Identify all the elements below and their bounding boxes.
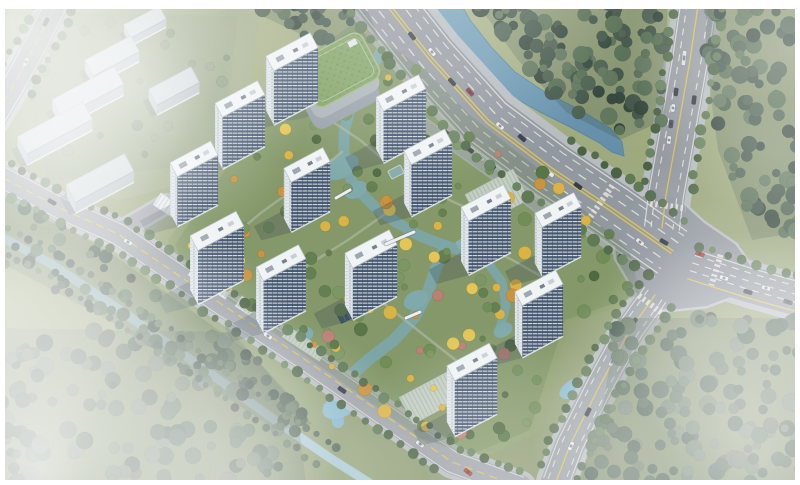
frame-right <box>795 0 800 485</box>
aerial-site-rendering <box>0 0 800 485</box>
frame-bottom <box>0 480 800 485</box>
frame-top <box>0 0 800 9</box>
rendering-canvas <box>0 0 800 485</box>
haze-layer <box>0 0 800 485</box>
frame-left <box>0 0 5 485</box>
